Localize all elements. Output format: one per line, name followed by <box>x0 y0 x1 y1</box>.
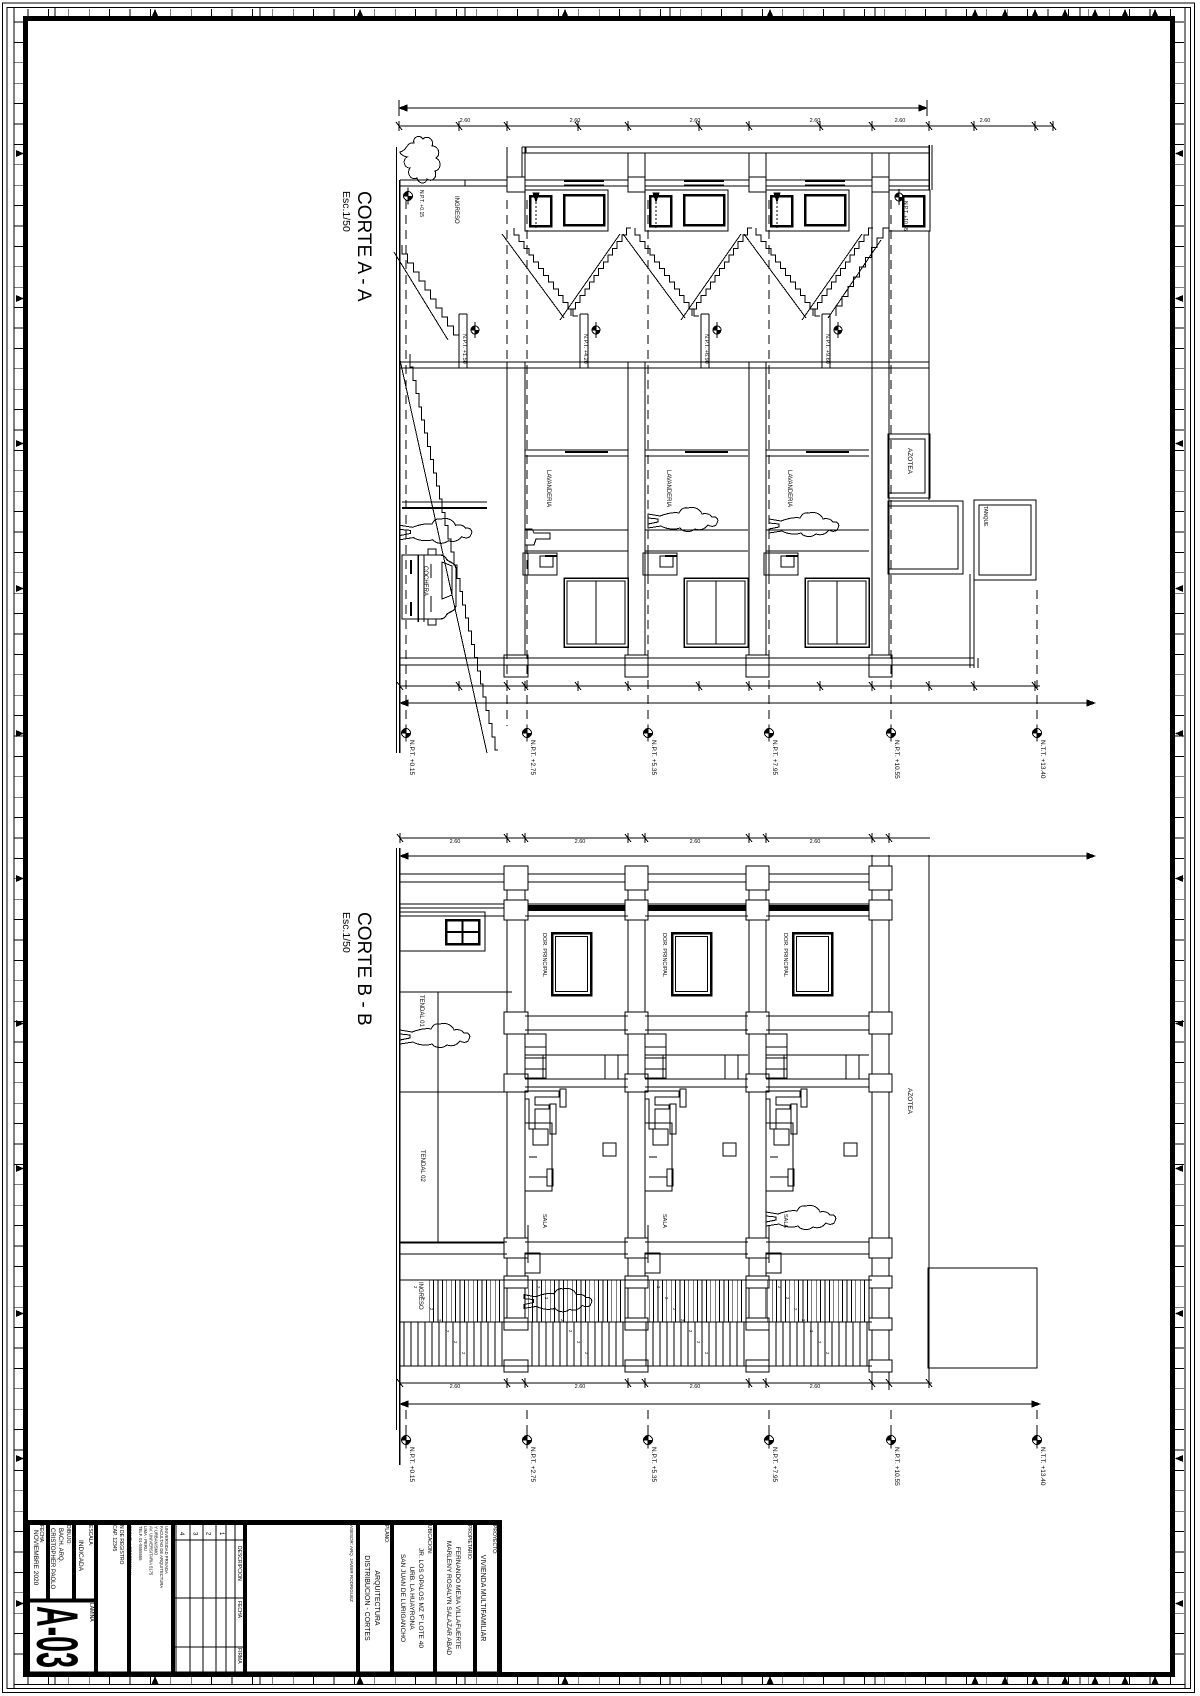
svg-text:N.P.T. +0.15: N.P.T. +0.15 <box>408 1447 415 1482</box>
svg-text:TELF. 01-5555555: TELF. 01-5555555 <box>138 1526 143 1561</box>
svg-text:N.T.T. +13.40: N.T.T. +13.40 <box>1039 740 1046 779</box>
svg-text:PLANO:: PLANO: <box>383 1525 389 1543</box>
svg-text:COCHERA: COCHERA <box>422 566 428 596</box>
svg-text:N.P.T. +9.60: N.P.T. +9.60 <box>824 334 830 364</box>
svg-text:2.60: 2.60 <box>450 1384 461 1390</box>
svg-text:ARQUITECTURA: ARQUITECTURA <box>373 1570 380 1626</box>
svg-text:N.P.T. +1.50: N.P.T. +1.50 <box>461 334 467 364</box>
svg-text:2.60: 2.60 <box>690 118 701 124</box>
svg-text:N.P.T. +5.35: N.P.T. +5.35 <box>650 740 657 775</box>
svg-text:AZOTEA: AZOTEA <box>906 448 913 475</box>
svg-text:2.60: 2.60 <box>690 1384 701 1390</box>
svg-text:SAN JUAN DE LURIGANCHO: SAN JUAN DE LURIGANCHO <box>399 1554 406 1642</box>
svg-text:UBICACION:: UBICACION: <box>426 1525 432 1554</box>
svg-text:CORTE A - A: CORTE A - A <box>353 191 374 302</box>
svg-text:JR. LOS OPALOS MZ 'F' LOTE 40: JR. LOS OPALOS MZ 'F' LOTE 40 <box>417 1548 424 1648</box>
svg-text:NOVIEMBRE 2020: NOVIEMBRE 2020 <box>32 1530 39 1586</box>
svg-text:DESCRIPCION: DESCRIPCION <box>236 1546 242 1581</box>
svg-text:INDICADA: INDICADA <box>77 1540 84 1572</box>
svg-text:ESCALA:: ESCALA: <box>87 1525 93 1546</box>
svg-text:2.60: 2.60 <box>895 118 906 124</box>
svg-text:N DE REGISTRO: N DE REGISTRO <box>118 1525 124 1565</box>
svg-text:URB. LA HUAYRONA: URB. LA HUAYRONA <box>408 1566 415 1630</box>
svg-text:N.P.T. +2.75: N.P.T. +2.75 <box>529 740 536 775</box>
svg-text:INGRESO: INGRESO <box>417 1282 423 1310</box>
svg-text:LAVANDERIA: LAVANDERIA <box>665 470 671 507</box>
svg-text:2: 2 <box>704 1352 709 1355</box>
svg-text:AZOTEA: AZOTEA <box>906 1088 913 1115</box>
svg-text:2: 2 <box>793 1308 798 1311</box>
svg-text:SALA: SALA <box>661 1214 667 1228</box>
svg-text:2.60: 2.60 <box>980 118 991 124</box>
svg-text:2: 2 <box>688 1330 693 1333</box>
svg-text:TANQUE: TANQUE <box>982 506 988 527</box>
svg-text:DIBUJO:: DIBUJO: <box>65 1525 71 1545</box>
svg-text:TENDAL 02: TENDAL 02 <box>419 1150 425 1182</box>
svg-text:N.P.T. +0.15: N.P.T. +0.15 <box>408 740 415 775</box>
svg-text:2.60: 2.60 <box>570 118 581 124</box>
svg-text:2: 2 <box>809 1330 814 1333</box>
svg-text:N.P.T. +4.20: N.P.T. +4.20 <box>582 334 588 364</box>
svg-text:SALA: SALA <box>541 1214 547 1228</box>
svg-text:2.60: 2.60 <box>810 1384 821 1390</box>
svg-text:N.P.T. +10.55: N.P.T. +10.55 <box>893 740 900 779</box>
svg-text:FECHA: FECHA <box>236 1601 242 1619</box>
svg-text:PROYECTO:: PROYECTO: <box>491 1525 497 1554</box>
svg-text:Esc.1/50: Esc.1/50 <box>340 912 352 953</box>
svg-text:2.60: 2.60 <box>690 839 701 845</box>
svg-text:Esc.1/50: Esc.1/50 <box>340 191 352 232</box>
svg-text:CRISTOPHER PAOLO: CRISTOPHER PAOLO <box>49 1528 55 1589</box>
svg-text:DOR. PRINCIPAL: DOR. PRINCIPAL <box>782 933 788 977</box>
svg-text:BACH. ARQ.: BACH. ARQ. <box>57 1528 63 1563</box>
svg-text:LAVANDERIA: LAVANDERIA <box>545 470 551 507</box>
svg-text:N.P.T. +10.55: N.P.T. +10.55 <box>893 1447 900 1486</box>
svg-text:FERNANDO MEJIA VILLAFUERTE: FERNANDO MEJIA VILLAFUERTE <box>454 1547 461 1650</box>
svg-text:ESCUELA PROFESIONAL: ESCUELA PROFESIONAL <box>128 1526 133 1577</box>
svg-text:2: 2 <box>453 1341 458 1344</box>
svg-text:2.60: 2.60 <box>575 839 586 845</box>
svg-text:DOR. PRINCIPAL: DOR. PRINCIPAL <box>661 933 667 977</box>
svg-text:N.T.T. +13.40: N.T.T. +13.40 <box>1039 1447 1046 1486</box>
svg-text:N.P.T. +10.55: N.P.T. +10.55 <box>902 201 908 231</box>
svg-text:FIRMA: FIRMA <box>236 1648 242 1664</box>
svg-text:ASESOR: ARQ. JAVIER RODRIGUEZ: ASESOR: ARQ. JAVIER RODRIGUEZ <box>349 1525 354 1602</box>
svg-text:2: 2 <box>696 1341 701 1344</box>
svg-text:2: 2 <box>568 1330 573 1333</box>
svg-text:2: 2 <box>576 1341 581 1344</box>
svg-text:N.P.T. +7.95: N.P.T. +7.95 <box>771 1447 778 1482</box>
svg-text:2: 2 <box>544 1297 549 1300</box>
svg-text:2: 2 <box>672 1308 677 1311</box>
svg-text:MARLENY ROSALYN SALAZAR ABAD: MARLENY ROSALYN SALAZAR ABAD <box>445 1541 452 1656</box>
svg-text:DOR. PRINCIPAL: DOR. PRINCIPAL <box>541 933 547 977</box>
svg-text:N.P.T. +7.95: N.P.T. +7.95 <box>771 740 778 775</box>
svg-text:VIVIENDA MULTIFAMILIAR: VIVIENDA MULTIFAMILIAR <box>479 1555 486 1642</box>
svg-text:CAP. 12345: CAP. 12345 <box>111 1525 117 1552</box>
svg-text:2: 2 <box>461 1352 466 1355</box>
svg-text:CORTE B - B: CORTE B - B <box>353 912 374 1026</box>
svg-text:N.P.T. +5.35: N.P.T. +5.35 <box>650 1447 657 1482</box>
svg-text:2: 2 <box>656 1286 661 1289</box>
svg-text:A-03: A-03 <box>24 1606 89 1668</box>
svg-text:N.P.T. +2.75: N.P.T. +2.75 <box>529 1447 536 1482</box>
svg-text:LAVANDERIA: LAVANDERIA <box>786 470 792 507</box>
svg-text:DISTRIBUCION - CORTES: DISTRIBUCION - CORTES <box>363 1555 370 1641</box>
svg-text:N.P.T. +0.15: N.P.T. +0.15 <box>418 190 424 217</box>
svg-text:2.60: 2.60 <box>575 1384 586 1390</box>
svg-text:N.P.T. +6.90: N.P.T. +6.90 <box>703 334 709 364</box>
svg-text:2.60: 2.60 <box>810 118 821 124</box>
svg-text:2: 2 <box>825 1352 830 1355</box>
svg-text:2.60: 2.60 <box>450 839 461 845</box>
svg-text:2.60: 2.60 <box>810 839 821 845</box>
svg-text:2.60: 2.60 <box>460 118 471 124</box>
svg-text:TENDAL 01: TENDAL 01 <box>418 995 424 1027</box>
svg-text:INGRESO: INGRESO <box>453 196 459 224</box>
svg-text:PROPIETARIO:: PROPIETARIO: <box>466 1525 472 1560</box>
svg-text:LAMINA: LAMINA <box>88 1603 94 1622</box>
